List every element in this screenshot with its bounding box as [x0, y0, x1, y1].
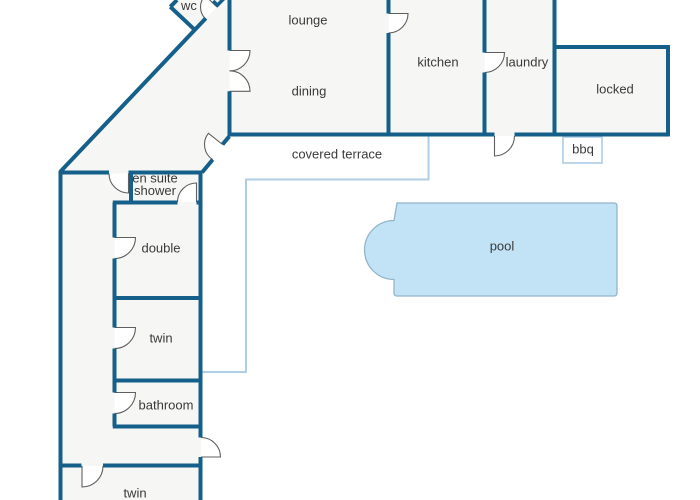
- svg-text:twin: twin: [149, 331, 172, 346]
- svg-text:wc: wc: [180, 0, 197, 13]
- svg-text:covered terrace: covered terrace: [292, 147, 382, 162]
- svg-text:bbq: bbq: [572, 142, 594, 157]
- svg-text:pool: pool: [490, 239, 515, 254]
- svg-text:double: double: [141, 241, 180, 256]
- svg-text:dining: dining: [292, 84, 327, 99]
- svg-text:shower: shower: [134, 183, 177, 198]
- svg-text:locked: locked: [596, 82, 634, 97]
- svg-text:twin: twin: [123, 486, 146, 500]
- svg-text:bathroom: bathroom: [139, 398, 194, 413]
- svg-text:laundry: laundry: [506, 55, 549, 70]
- svg-text:lounge: lounge: [288, 13, 327, 28]
- svg-text:kitchen: kitchen: [417, 55, 458, 70]
